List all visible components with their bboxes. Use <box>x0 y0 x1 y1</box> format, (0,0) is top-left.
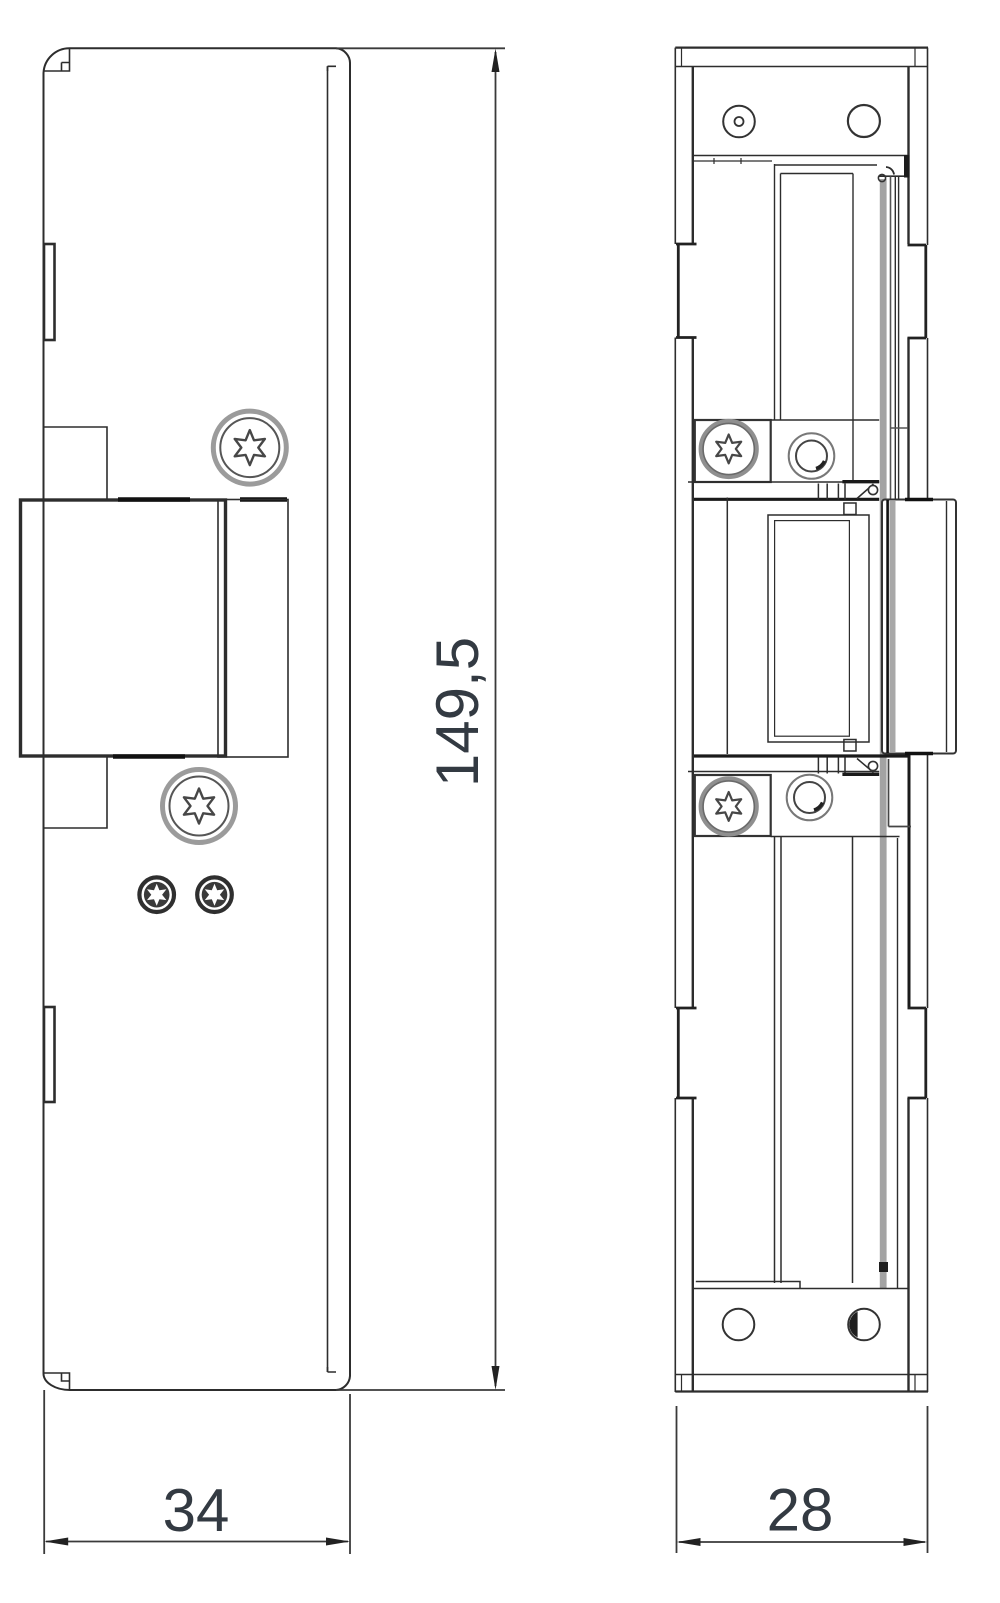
svg-text:149,5: 149,5 <box>424 637 491 787</box>
svg-text:34: 34 <box>163 1477 230 1544</box>
svg-text:28: 28 <box>767 1477 834 1544</box>
